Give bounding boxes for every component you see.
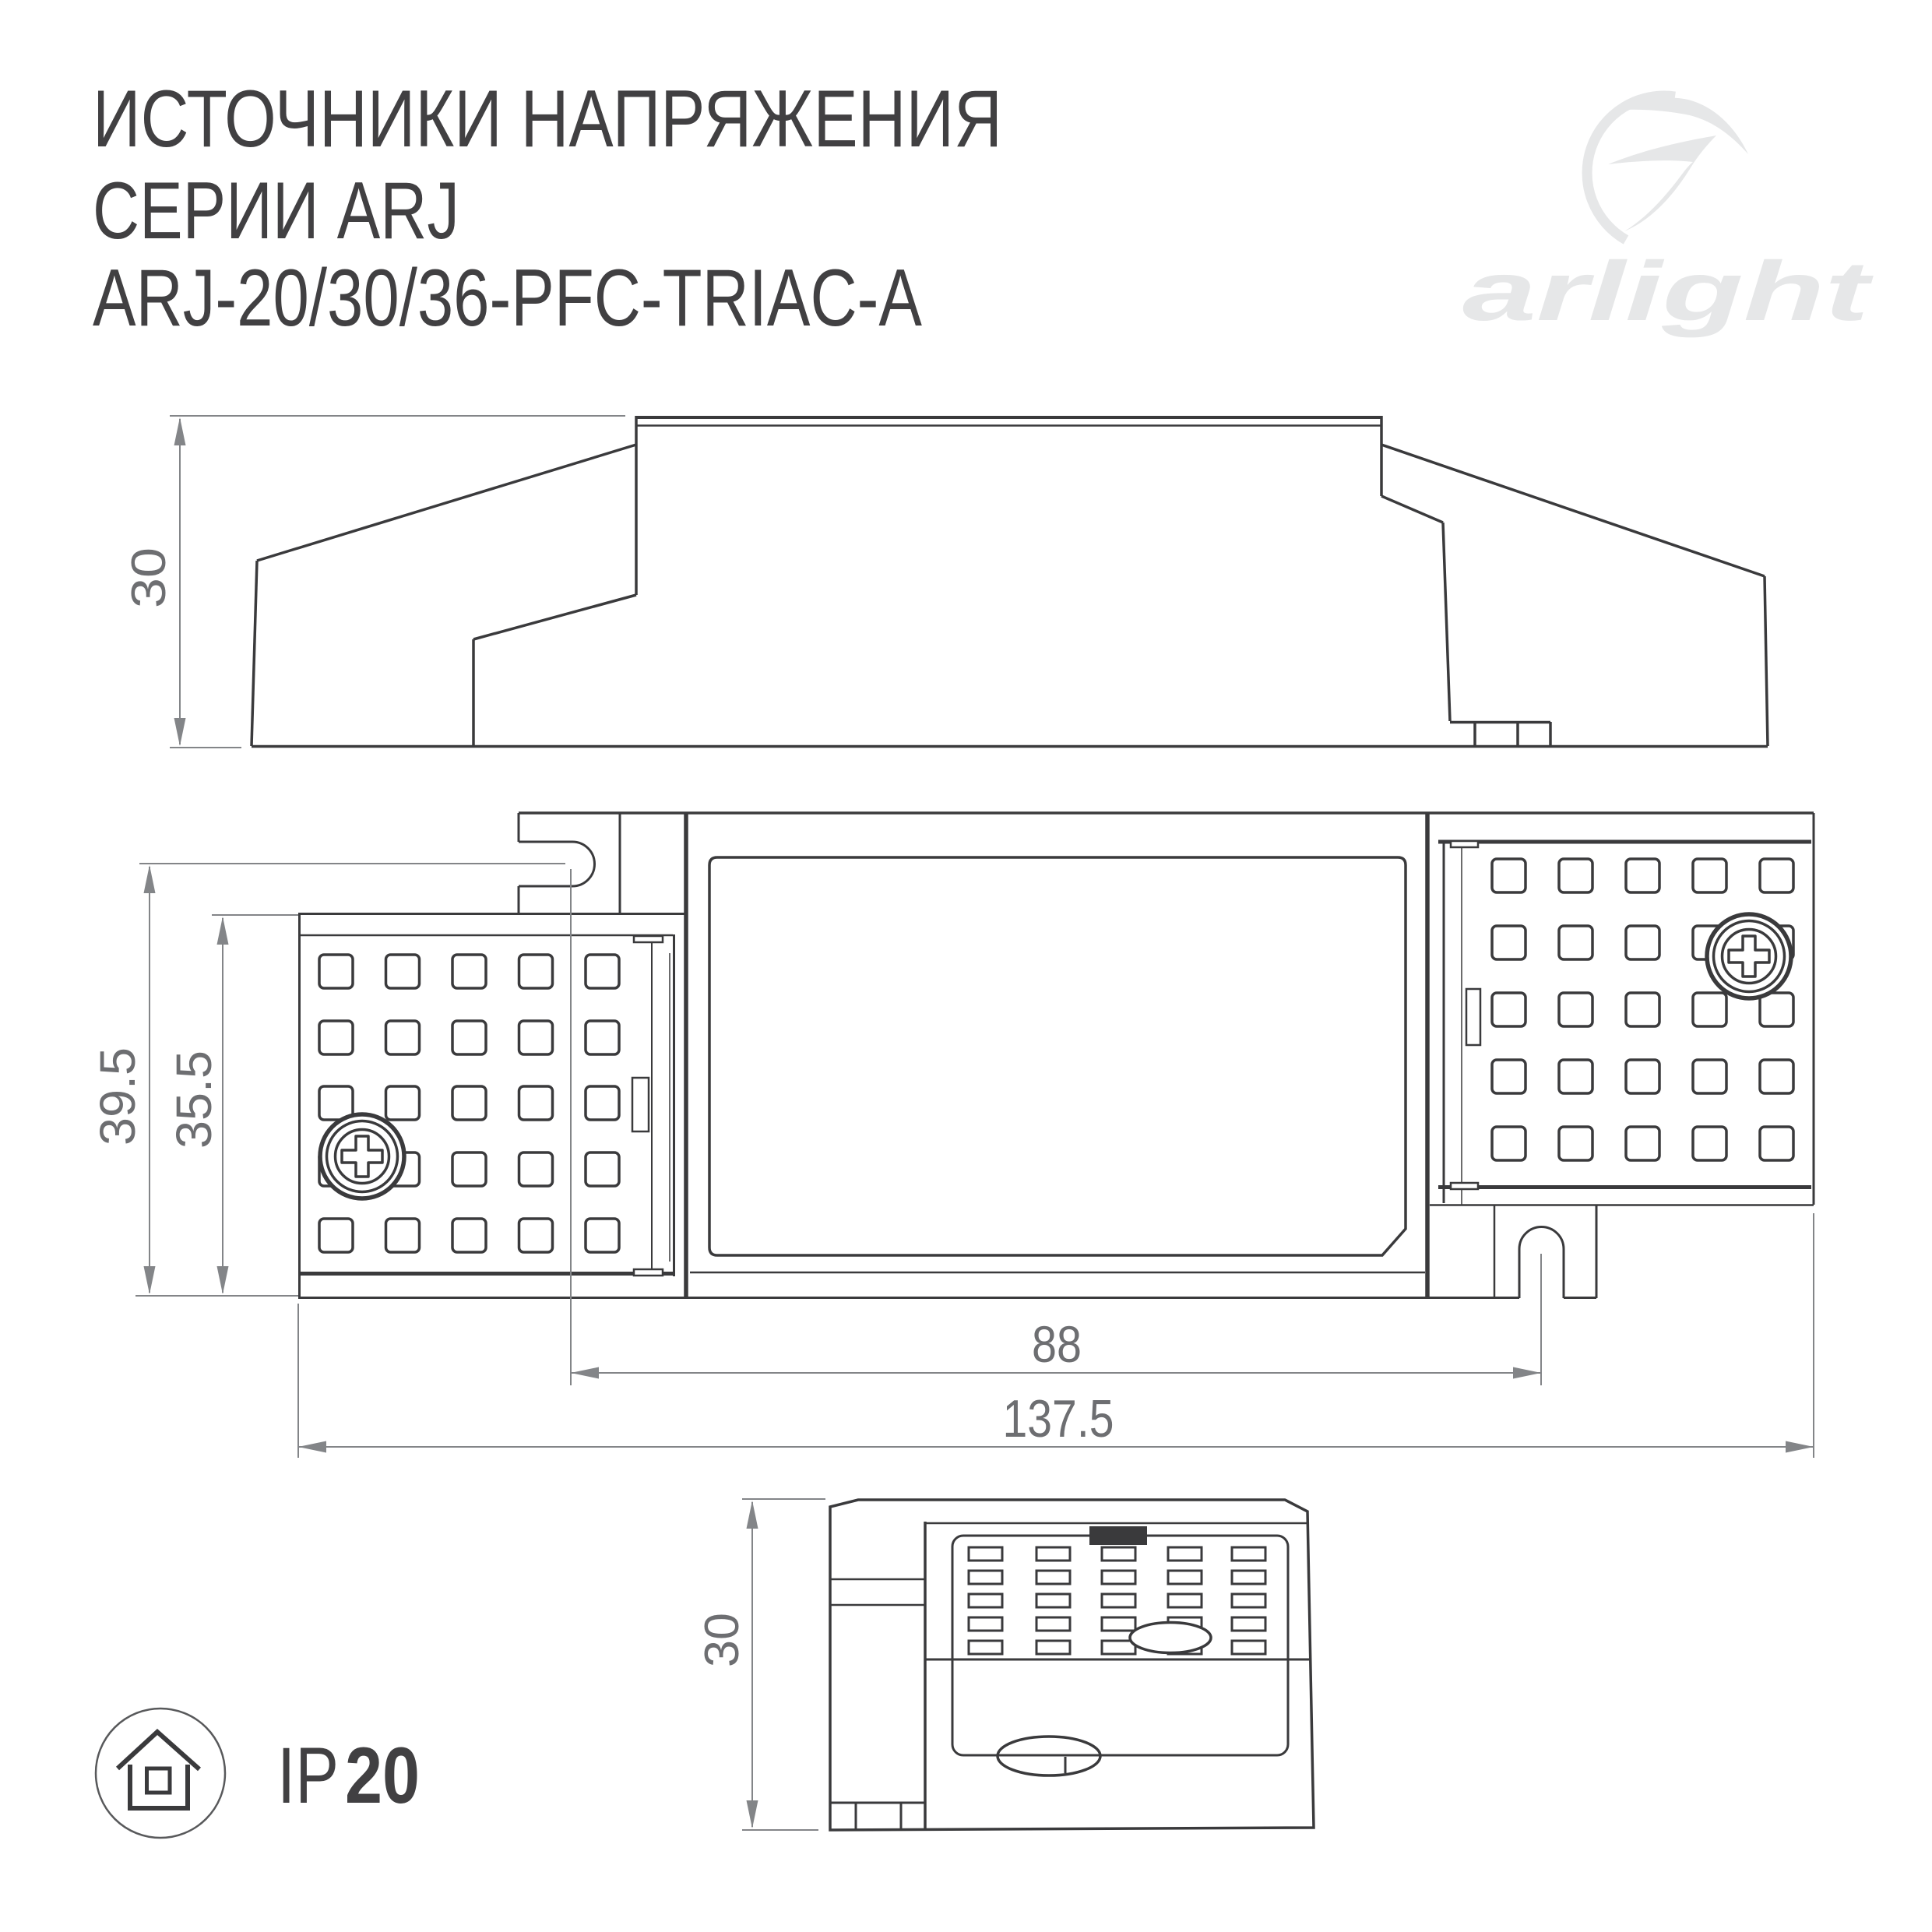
svg-text:39.5: 39.5	[90, 1047, 146, 1145]
svg-text:88: 88	[1032, 1315, 1082, 1373]
svg-text:30: 30	[122, 547, 176, 608]
svg-text:20: 20	[345, 1731, 420, 1820]
svg-text:30: 30	[695, 1613, 749, 1667]
svg-text:СЕРИИ ARJ: СЕРИИ ARJ	[93, 166, 459, 256]
svg-text:ARJ-20/30/36-PFC-TRIAC-A: ARJ-20/30/36-PFC-TRIAC-A	[93, 253, 923, 343]
svg-text:35.5: 35.5	[166, 1050, 222, 1149]
svg-text:IP: IP	[277, 1731, 339, 1820]
svg-text:arlight: arlight	[1462, 244, 1874, 338]
svg-text:ИСТОЧНИКИ НАПРЯЖЕНИЯ: ИСТОЧНИКИ НАПРЯЖЕНИЯ	[93, 74, 1002, 164]
svg-text:137.5: 137.5	[1003, 1389, 1114, 1448]
